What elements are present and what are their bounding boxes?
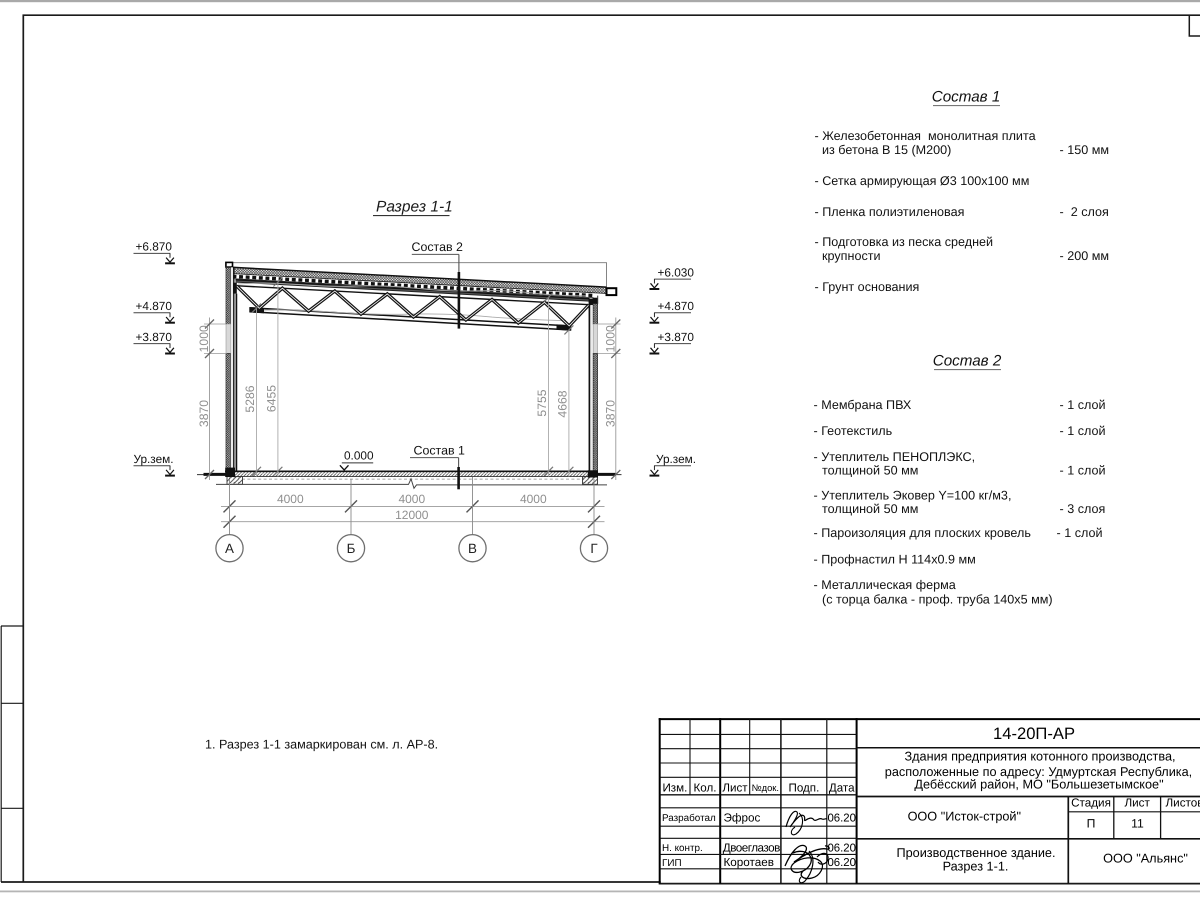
svg-text:- Сетка армирующая Ø3 100х100: - Сетка армирующая Ø3 100х100 мм [815,174,1030,188]
svg-text:12000: 12000 [395,508,429,522]
svg-text:+4.870: +4.870 [658,299,695,313]
svg-text:4000: 4000 [398,492,425,506]
svg-text:- 1 слой: - 1 слой [1060,424,1106,438]
svg-text:4668: 4668 [555,390,569,417]
svg-text:- 1 слой: - 1 слой [1060,398,1106,412]
svg-text:1. Разрез 1-1 замаркирован см.: 1. Разрез 1-1 замаркирован см. л. АР-8. [205,738,438,752]
svg-text:Коротаев: Коротаев [724,856,774,869]
svg-text:Состав 1: Состав 1 [414,444,465,458]
svg-text:- Подготовка из песка средней: - Подготовка из песка средней [815,235,994,249]
svg-text:- Металлическая ферма: - Металлическая ферма [814,578,956,592]
svg-text:толщиной 50 мм: толщиной 50 мм [822,502,918,516]
svg-text:- 150 мм: - 150 мм [1060,143,1110,157]
svg-text:из бетона В 15 (М200): из бетона В 15 (М200) [822,143,951,157]
svg-text:- Пленка полиэтиленовая: - Пленка полиэтиленовая [815,205,965,219]
svg-text:4000: 4000 [520,492,547,506]
svg-text:Изм.: Изм. [662,781,687,794]
svg-text:1000: 1000 [604,325,618,352]
svg-text:- Утеплитель Эковер Y=100 кг/м: - Утеплитель Эковер Y=100 кг/м3, [814,489,1012,503]
svg-text:Лист: Лист [722,781,748,794]
svg-text:Ур.зем.: Ур.зем. [656,452,696,466]
svg-text:А: А [225,541,234,556]
svg-text:Здания предприятия котонного п: Здания предприятия котонного производств… [904,749,1175,763]
svg-text:3870: 3870 [197,400,211,427]
svg-text:Состав 1: Состав 1 [932,89,1001,106]
svg-text:Листов: Листов [1166,797,1200,810]
svg-text:06.20: 06.20 [827,812,856,824]
svg-text:- Пароизоляция для плоских кро: - Пароизоляция для плоских кровель [814,526,1032,540]
svg-text:4000: 4000 [277,492,304,506]
svg-text:1000: 1000 [197,325,211,352]
svg-text:Кол.: Кол. [694,781,717,794]
svg-text:(с торца балка - проф. труба 1: (с торца балка - проф. труба 140х5 мм) [822,592,1053,606]
svg-text:11: 11 [1131,817,1144,831]
svg-text:+4.870: +4.870 [136,299,173,313]
svg-text:Н. контр.: Н. контр. [662,843,703,854]
svg-text:Подп.: Подп. [789,781,820,794]
svg-text:Состав 2: Состав 2 [412,240,463,254]
svg-text:- 3 слоя: - 3 слоя [1060,502,1106,516]
svg-text:ГИП: ГИП [662,858,682,869]
svg-text:№док.: №док. [752,782,779,793]
svg-text:- 1 слой: - 1 слой [1060,464,1106,478]
svg-text:5286: 5286 [243,385,257,412]
svg-text:+3.870: +3.870 [136,330,173,344]
svg-text:Разработал: Разработал [662,813,716,824]
svg-text:5755: 5755 [535,389,549,416]
svg-text:06.20: 06.20 [827,843,856,855]
svg-text:06.20: 06.20 [827,857,856,869]
svg-text:- Мембрана ПВХ: - Мембрана ПВХ [814,398,912,412]
svg-text:14-20П-АР: 14-20П-АР [993,724,1075,743]
svg-text:Разрез 1-1: Разрез 1-1 [376,199,453,216]
svg-text:толщиной 50 мм: толщиной 50 мм [822,464,918,478]
svg-text:- 200 мм: - 200 мм [1060,249,1110,263]
svg-text:- Железобетонная монолитная п: - Железобетонная монолитная плита [815,129,1036,143]
svg-text:- Грунт основания: - Грунт основания [815,280,920,294]
svg-text:Ур.зем.: Ур.зем. [134,452,174,466]
svg-text:- Геотекстиль: - Геотекстиль [814,424,893,438]
svg-text:+6.870: +6.870 [136,240,173,254]
svg-text:3870: 3870 [604,400,618,427]
svg-text:+6.030: +6.030 [658,265,695,279]
svg-text:Стадия: Стадия [1071,797,1111,810]
svg-text:Дебёсский район, МО "Большезет: Дебёсский район, МО "Большезетымское" [914,778,1163,792]
svg-text:крупности: крупности [822,249,881,263]
svg-text:Двоеглазов: Двоеглазов [723,842,781,855]
svg-text:Состав 2: Состав 2 [933,352,1002,369]
svg-text:- Утеплитель ПЕНОПЛЭКС,: - Утеплитель ПЕНОПЛЭКС, [814,450,976,464]
svg-text:Производственное здание.: Производственное здание. [896,846,1055,860]
svg-text:6455: 6455 [264,385,278,412]
svg-text:- Профнастил Н 114х0.9 мм: - Профнастил Н 114х0.9 мм [814,552,976,566]
svg-text:0.000: 0.000 [344,449,374,463]
svg-text:Разрез 1-1.: Разрез 1-1. [943,859,1009,873]
svg-text:П: П [1087,817,1096,831]
svg-text:ООО "Альянс": ООО "Альянс" [1103,852,1188,866]
svg-text:Дата: Дата [829,781,855,794]
svg-text:В: В [468,541,477,556]
svg-text:- 2 слоя: - 2 слоя [1060,205,1109,219]
svg-text:+3.870: +3.870 [658,330,695,344]
svg-text:Г: Г [590,541,597,556]
svg-text:Эфрос: Эфрос [724,811,761,824]
svg-text:ООО "Исток-строй": ООО "Исток-строй" [908,809,1021,823]
svg-text:Лист: Лист [1124,797,1150,810]
svg-text:Б: Б [347,541,356,556]
svg-text:- 1 слой: - 1 слой [1057,526,1103,540]
